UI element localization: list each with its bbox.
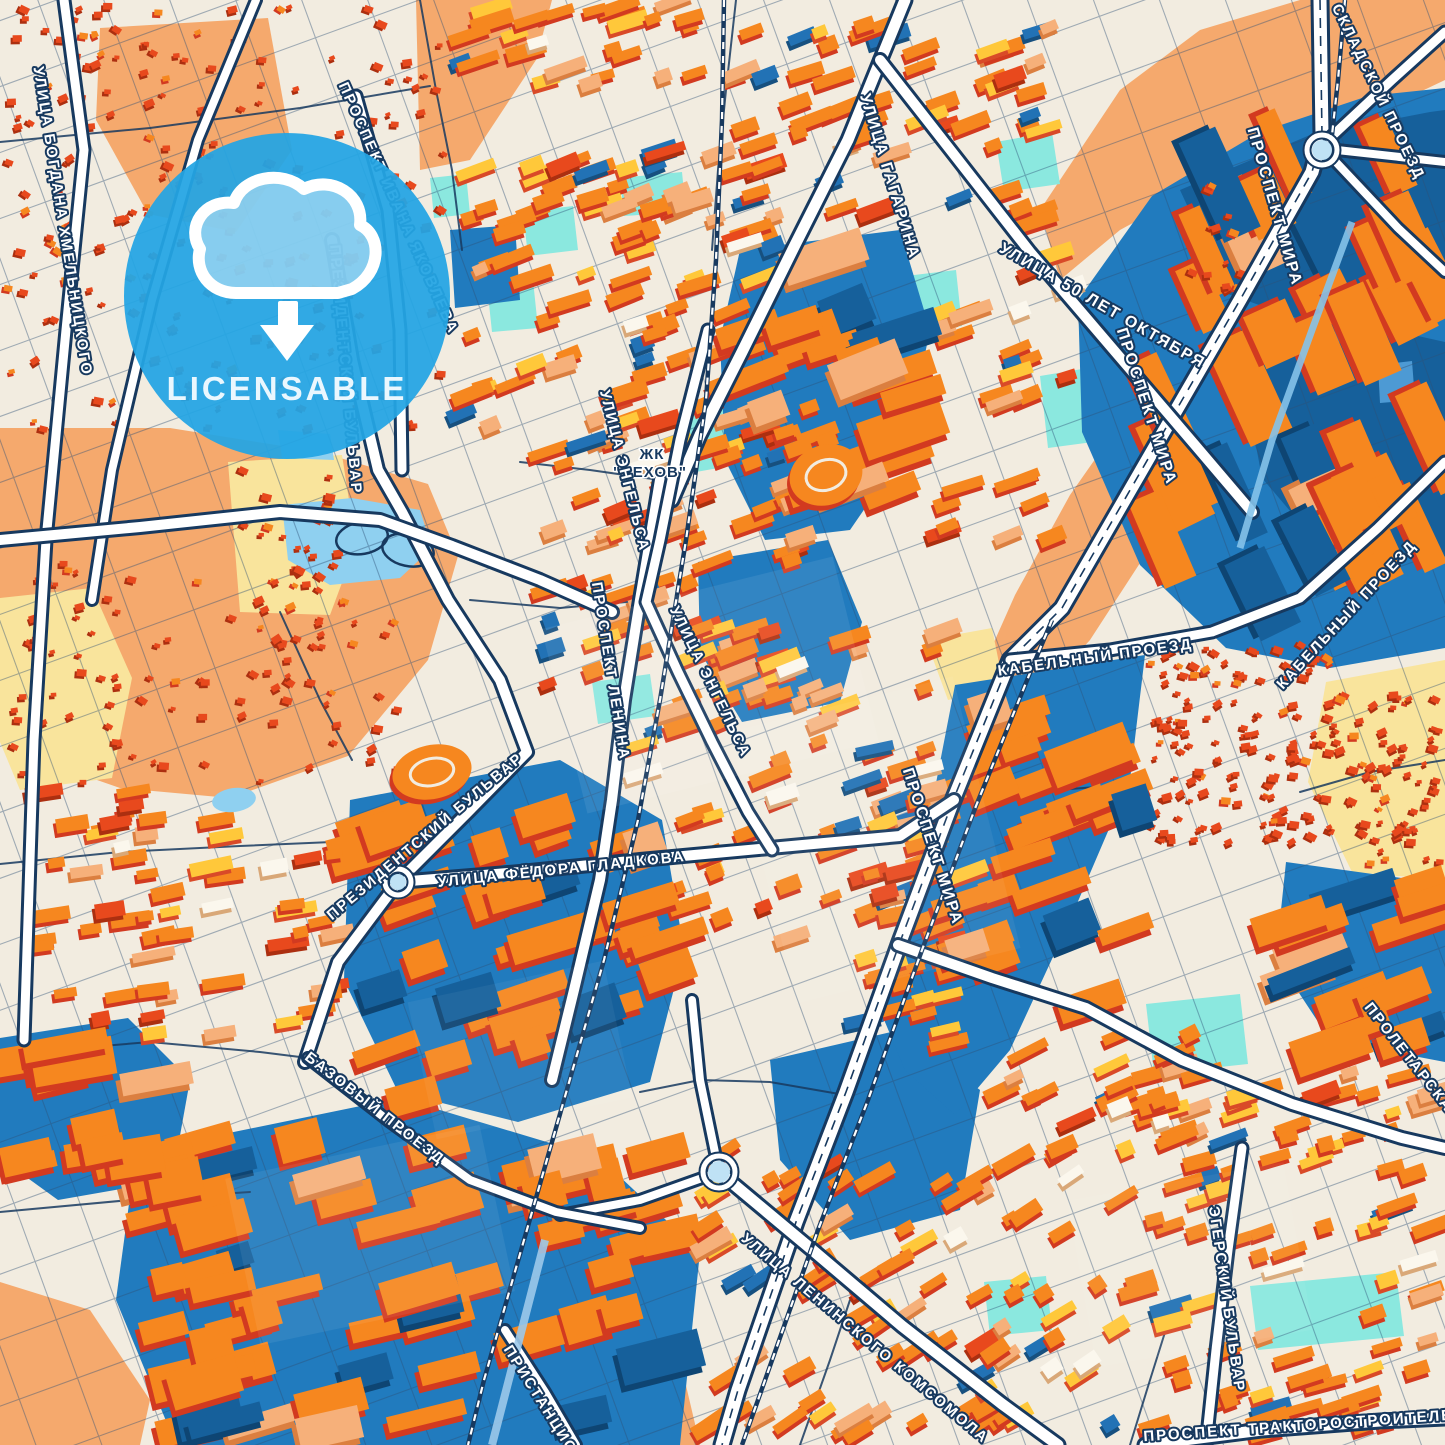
- licensable-badge: LICENSABLE: [124, 133, 450, 459]
- place-label: ЖК: [639, 446, 665, 463]
- roundabout: [1312, 140, 1332, 160]
- download-arrow-head: [260, 325, 314, 361]
- map-poster: УЛИЦА БОГДАНА ХМЕЛЬНИЦКОГОПРОСПЕКТ ИВАНА…: [0, 0, 1445, 1445]
- roundabout: [390, 874, 406, 890]
- cloud-outline: [195, 178, 375, 293]
- download-arrow-stem: [278, 301, 298, 327]
- badge-label: LICENSABLE: [124, 370, 450, 408]
- cloud-download-icon: [124, 133, 450, 459]
- roundabout: [708, 1161, 730, 1183]
